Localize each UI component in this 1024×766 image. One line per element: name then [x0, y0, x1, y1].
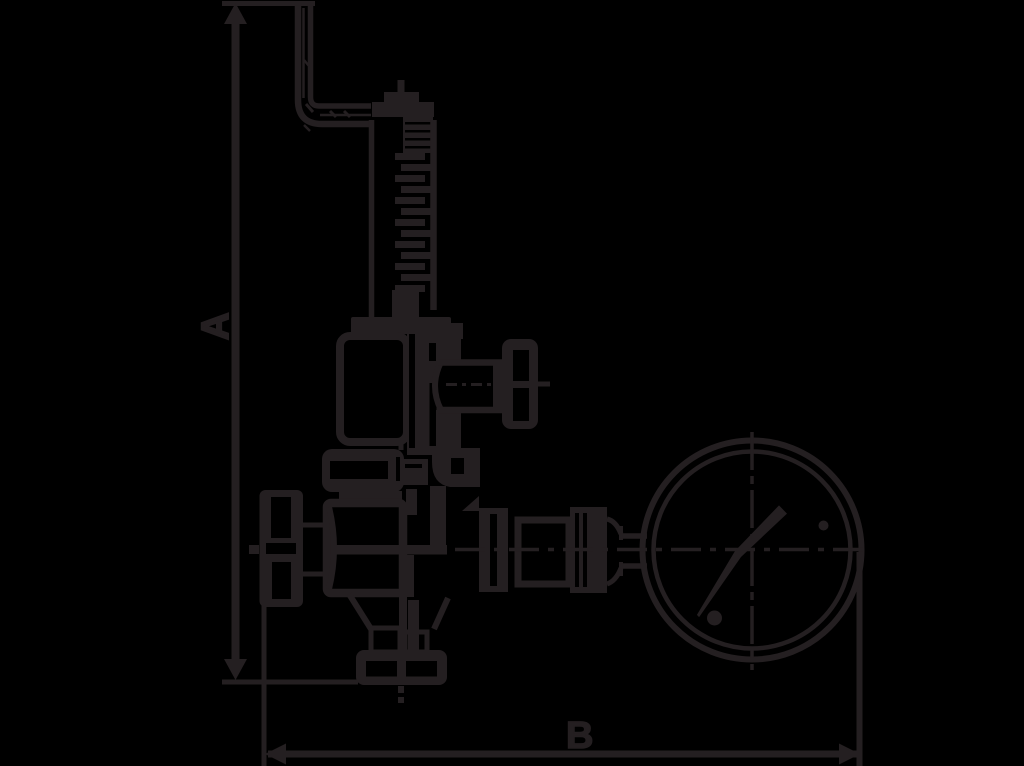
svg-text:B: B [566, 715, 593, 757]
svg-text:A: A [195, 313, 237, 340]
